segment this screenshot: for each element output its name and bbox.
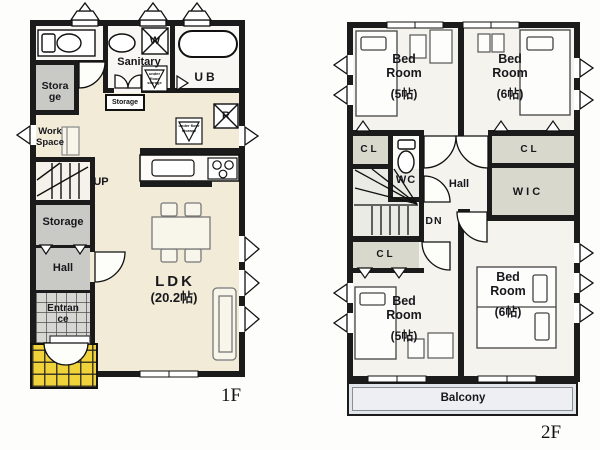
floor1-label: 1F — [221, 390, 241, 402]
room-label-cl-right: CL — [520, 144, 539, 156]
wall — [353, 164, 388, 169]
room-label-entrance: Entrance — [47, 303, 79, 325]
stairs-down-label: DN — [425, 215, 442, 227]
wall — [353, 268, 424, 273]
wall — [36, 110, 79, 115]
wall — [487, 215, 574, 221]
wall — [30, 200, 95, 205]
room-label-ub: UB — [194, 71, 217, 83]
floor1-toilet-room — [36, 26, 103, 62]
wall — [487, 136, 492, 221]
wall — [175, 88, 239, 93]
balcony-label: Balcony — [441, 392, 486, 404]
room-label-cl-left: CL — [360, 144, 379, 156]
room-label-workspace: Work Space — [36, 127, 64, 148]
room-size-bedroom-br: (6帖) — [495, 306, 522, 318]
room-label-storage-small: Storage — [112, 99, 138, 106]
washing-machine-label: W — [150, 35, 160, 47]
floor-plan-canvas: Sanitary W UB Storage Storage Work Space… — [0, 0, 600, 450]
door-opening — [114, 88, 141, 93]
wall — [458, 28, 464, 136]
wall — [36, 290, 90, 293]
room-label-ldk: LDK — [155, 276, 195, 288]
room-label-hall-2f: Hall — [449, 178, 469, 190]
room-size-bedroom-tl: (5帖) — [391, 88, 418, 100]
wall — [419, 136, 424, 202]
storage-small-box: Storage — [105, 94, 145, 111]
room-label-wic: WIC — [513, 186, 543, 198]
wall — [30, 157, 95, 162]
wall — [492, 163, 574, 168]
under-floor-storage-label: under floor storage — [144, 72, 165, 86]
floor1-stairs-area — [36, 162, 90, 200]
wall — [90, 282, 95, 343]
stairs-up-label: UP — [93, 176, 108, 188]
room-size-bedroom-bl: (5帖) — [391, 330, 418, 342]
wall — [353, 236, 424, 242]
floor2-label: 2F — [541, 427, 561, 439]
room-size-bedroom-tr: (6帖) — [497, 88, 524, 100]
room-size-ldk: (20.2帖) — [151, 292, 198, 304]
room-label-bedroom-tl: Bed Room — [374, 52, 434, 80]
wall — [36, 245, 90, 248]
room-label-bedroom-bl: Bed Room — [374, 294, 434, 322]
wall — [488, 130, 574, 136]
floor1-porch — [30, 343, 98, 389]
room-label-hall-1f: Hall — [53, 262, 73, 274]
room-label-bedroom-br: Bed Room — [478, 270, 538, 298]
wall — [388, 136, 393, 202]
wall — [36, 60, 103, 65]
wall — [74, 65, 79, 110]
room-label-cl-bottom: CL — [376, 249, 395, 261]
room-label-sanitary: Sanitary — [117, 56, 160, 68]
wall — [458, 215, 464, 376]
room-label-storage-top: Storage — [39, 81, 71, 103]
refrigerator-label: R — [222, 110, 230, 122]
wall — [170, 26, 175, 93]
room-label-storage-mid: Storage — [43, 216, 84, 228]
under-floor-storage-label: under floor storage — [178, 124, 200, 133]
wall — [103, 26, 108, 93]
room-label-wc: WC — [396, 174, 416, 186]
room-label-bedroom-tr: Bed Room — [480, 52, 540, 80]
